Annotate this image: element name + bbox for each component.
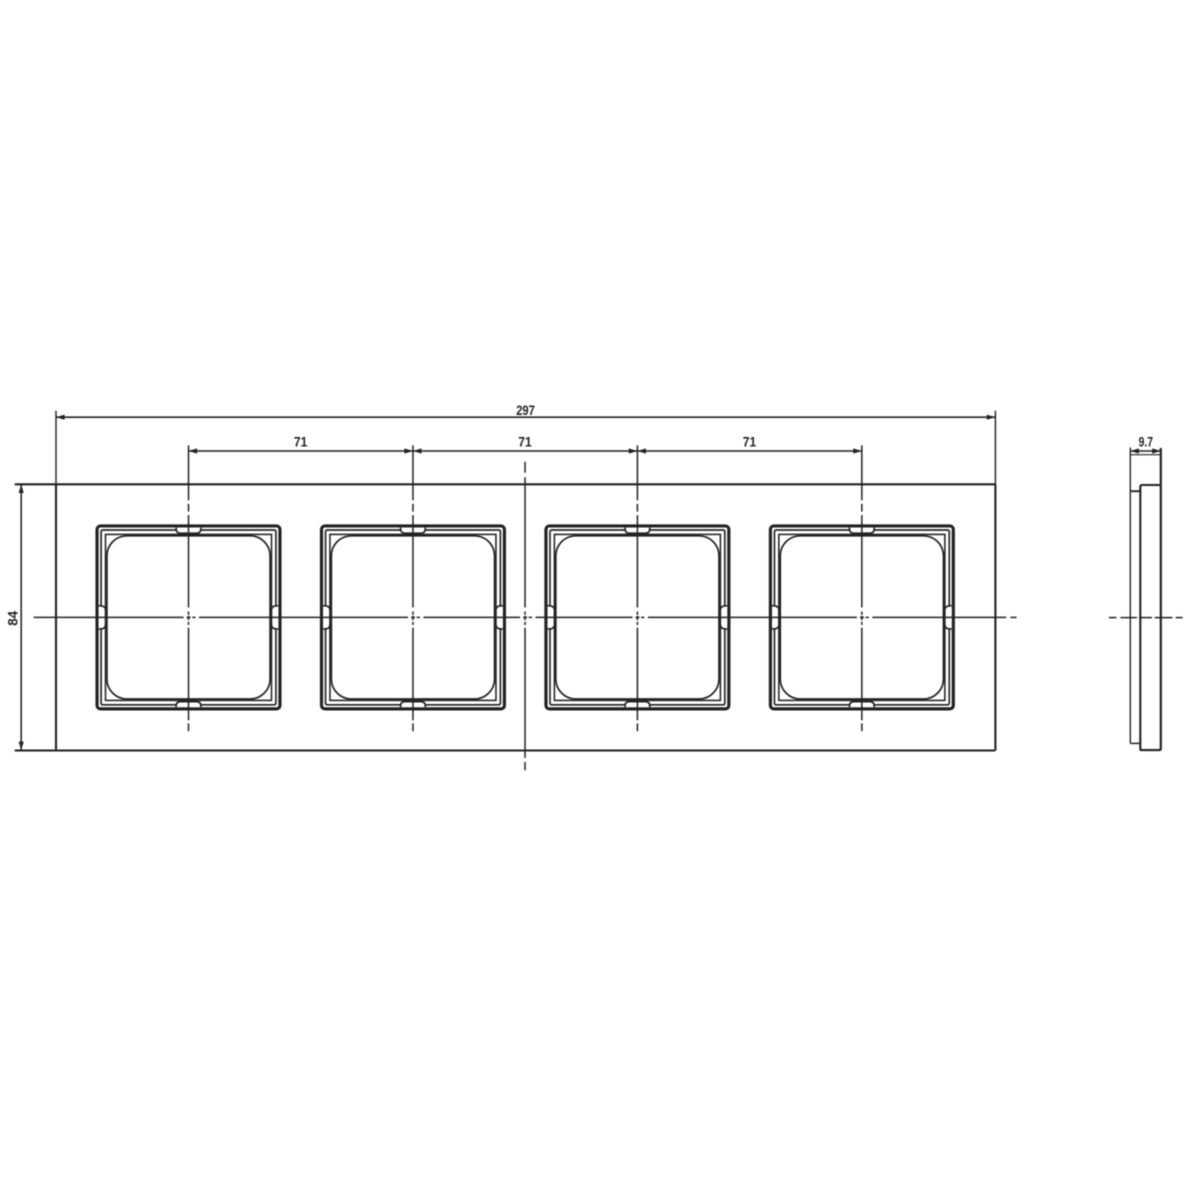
- svg-text:71: 71: [518, 434, 532, 450]
- svg-text:84: 84: [5, 611, 21, 626]
- svg-text:297: 297: [516, 402, 535, 418]
- svg-text:71: 71: [743, 434, 757, 450]
- svg-text:71: 71: [294, 434, 308, 450]
- svg-text:9.7: 9.7: [1139, 433, 1154, 449]
